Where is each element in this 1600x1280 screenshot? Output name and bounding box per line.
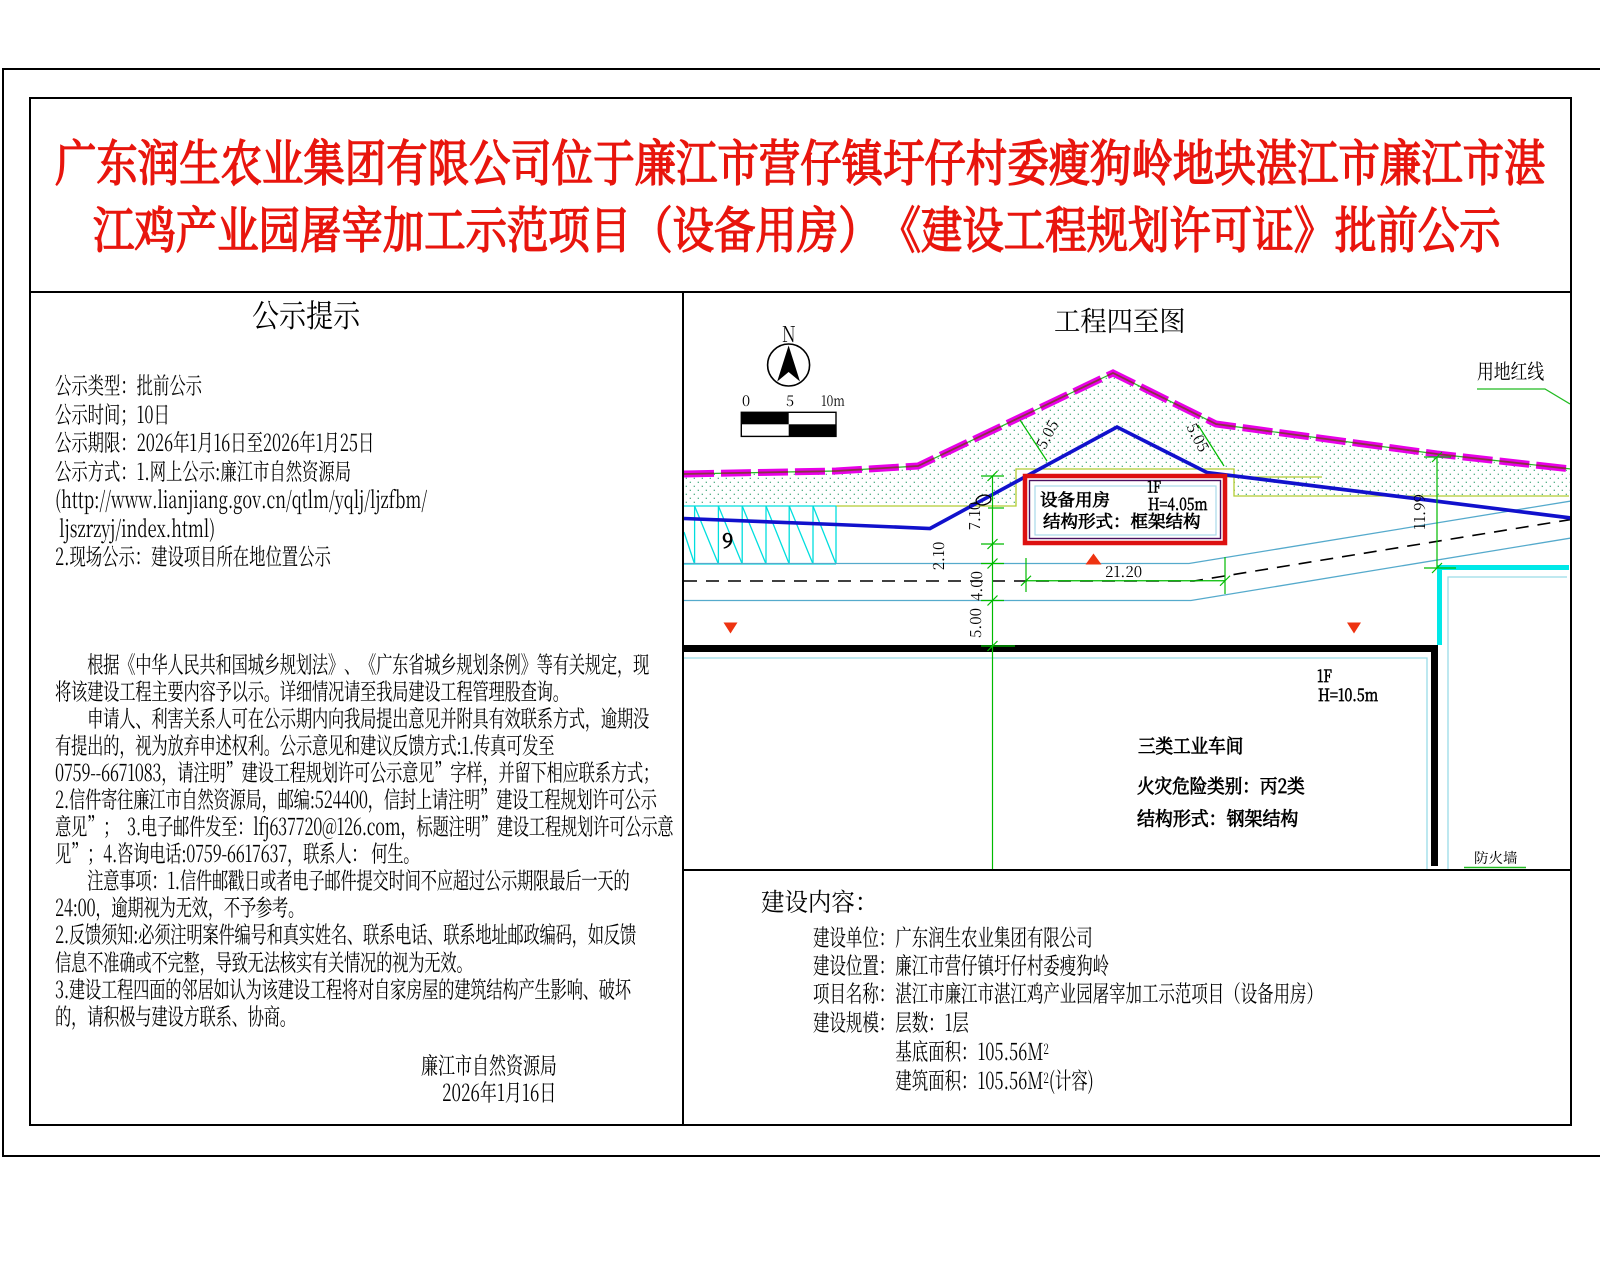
svg-text:5: 5 xyxy=(786,390,794,411)
svg-text:9: 9 xyxy=(722,525,733,554)
svg-text:21.20: 21.20 xyxy=(1105,561,1142,582)
svg-text:11.99: 11.99 xyxy=(1409,494,1430,530)
svg-text:0: 0 xyxy=(742,390,750,411)
svg-text:H=10.5m: H=10.5m xyxy=(1318,682,1378,706)
svg-text:2.10: 2.10 xyxy=(928,542,949,571)
svg-text:结构形式：框架结构: 结构形式：框架结构 xyxy=(1043,509,1201,534)
svg-text:结构形式：钢架结构: 结构形式：钢架结构 xyxy=(1137,804,1299,832)
svg-text:防火墙: 防火墙 xyxy=(1474,847,1518,868)
svg-text:4.00: 4.00 xyxy=(966,571,987,601)
svg-text:火灾危险类别：丙2类: 火灾危险类别：丙2类 xyxy=(1137,772,1305,799)
svg-text:10m: 10m xyxy=(821,390,845,411)
svg-text:用地红线: 用地红线 xyxy=(1477,356,1544,386)
svg-text:工程四至图: 工程四至图 xyxy=(1054,299,1186,339)
svg-text:三类工业车间: 三类工业车间 xyxy=(1138,732,1243,759)
svg-text:5.00: 5.00 xyxy=(965,608,986,638)
svg-text:7.10: 7.10 xyxy=(964,502,985,531)
svg-text:N: N xyxy=(782,316,796,348)
